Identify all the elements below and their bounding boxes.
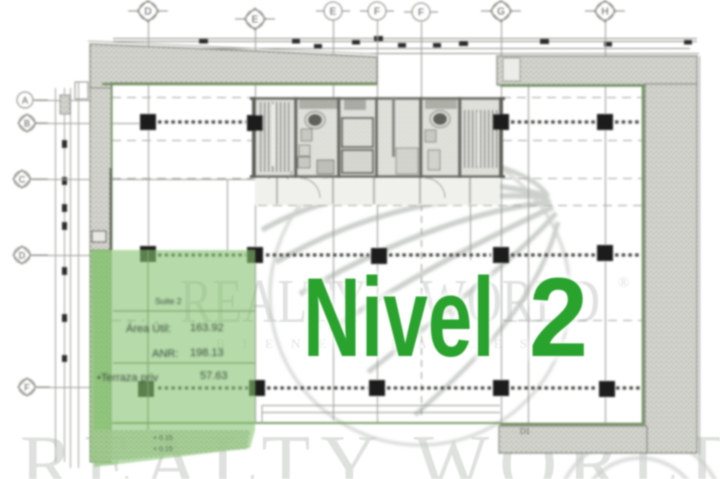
svg-text:Área Útil:: Área Útil: — [126, 322, 171, 335]
svg-text:198.13: 198.13 — [190, 347, 224, 359]
svg-text:Suite 2: Suite 2 — [155, 296, 182, 306]
svg-text:Nivel: Nivel — [303, 255, 495, 380]
svg-text:F: F — [24, 383, 30, 393]
svg-text:D: D — [19, 251, 26, 261]
svg-text:57.63: 57.63 — [200, 370, 228, 382]
svg-text:+ 0.15: + 0.15 — [153, 446, 173, 453]
svg-text:+ 0.15: + 0.15 — [153, 435, 173, 442]
svg-text:•Terraza priv: •Terraza priv — [97, 372, 159, 384]
svg-text:B: B — [24, 119, 30, 129]
svg-text:2: 2 — [529, 256, 588, 381]
svg-text:F: F — [418, 8, 424, 19]
svg-text:F: F — [374, 7, 380, 18]
svg-text:E: E — [330, 7, 337, 18]
svg-text:C: C — [19, 175, 26, 185]
svg-text:163.92: 163.92 — [190, 322, 224, 334]
svg-text:ANR:: ANR: — [152, 348, 178, 360]
svg-text:D1: D1 — [520, 427, 531, 436]
svg-text:H: H — [601, 7, 608, 18]
svg-text:D: D — [144, 7, 151, 18]
svg-text:A: A — [22, 96, 28, 106]
svg-text:E: E — [252, 15, 259, 26]
svg-text:®: ® — [618, 275, 629, 291]
svg-text:G: G — [497, 7, 505, 18]
